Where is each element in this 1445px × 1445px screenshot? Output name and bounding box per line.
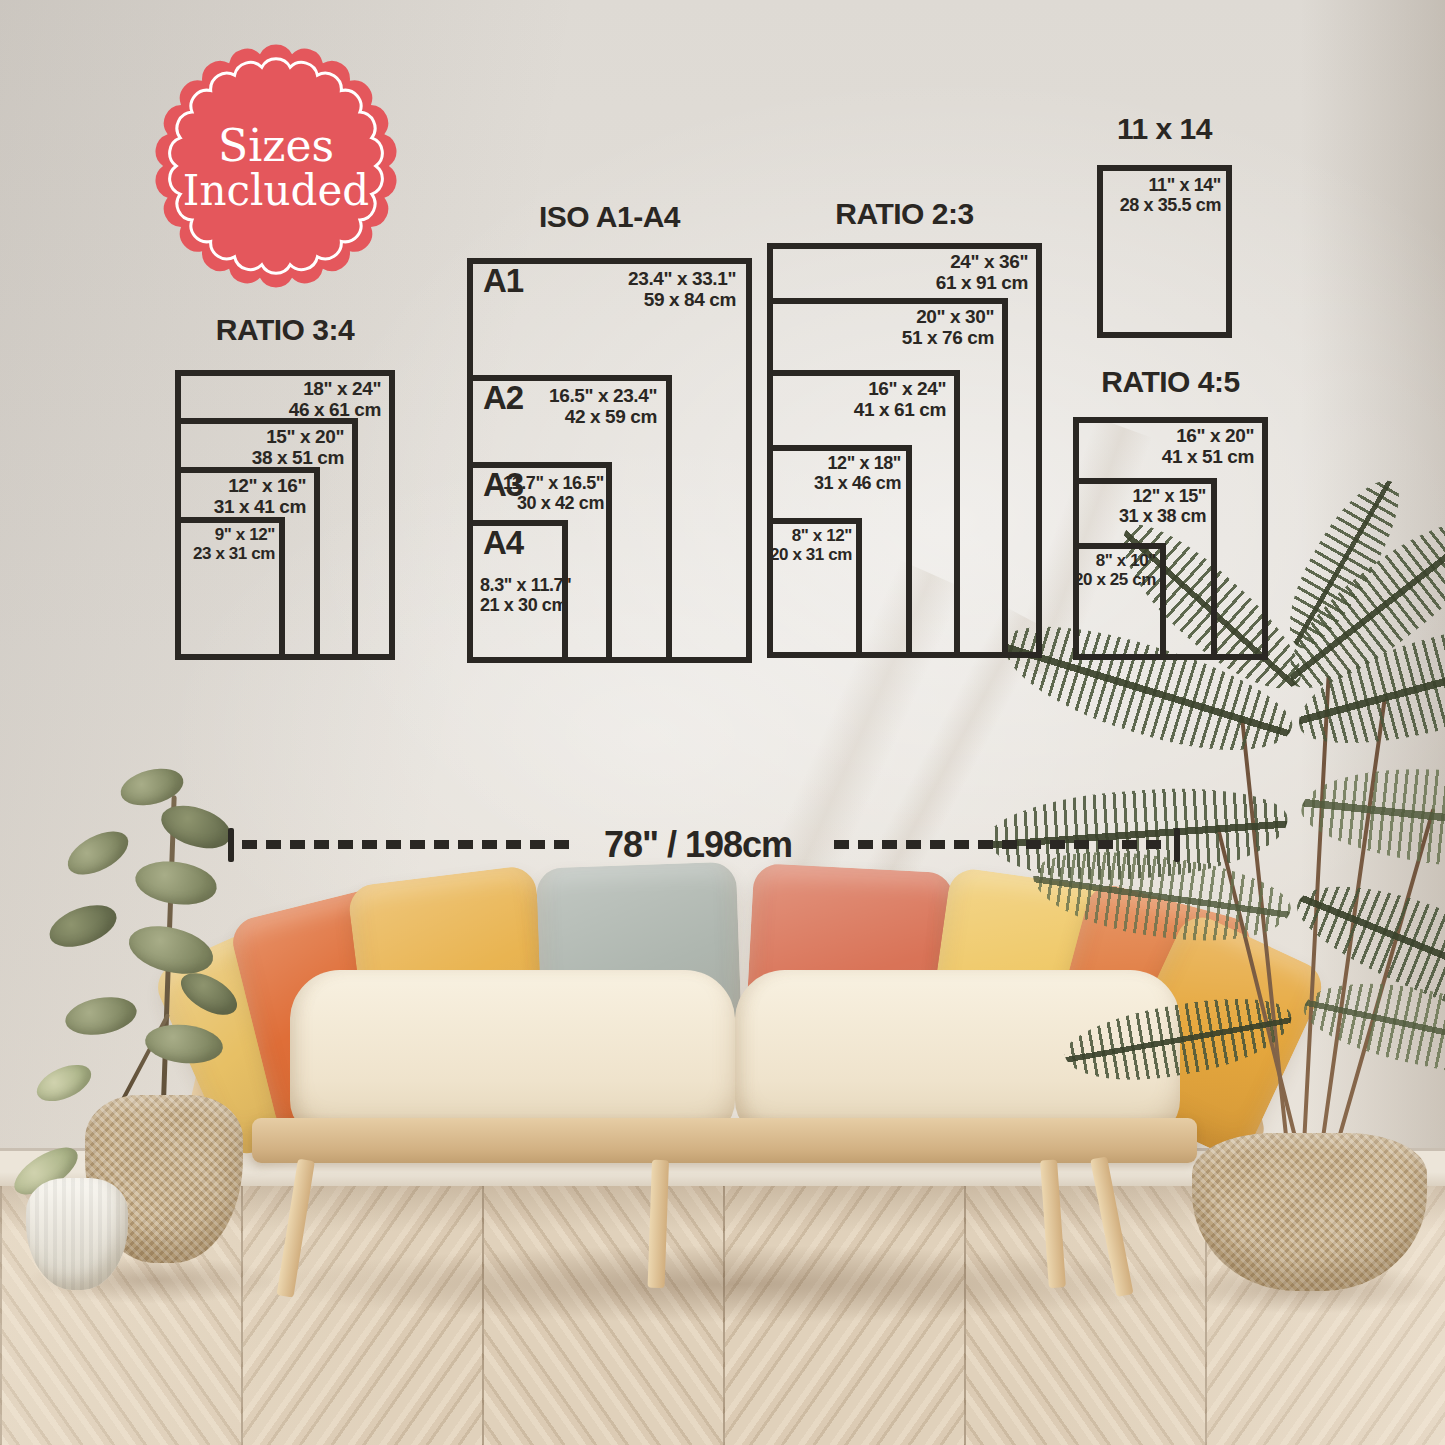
palm-frond: [1059, 986, 1298, 1095]
leaf: [132, 856, 219, 909]
seat-cushion-left: [290, 970, 735, 1140]
mockup-scene: Sizes Included RATIO 3:4 18" x 24"46 x 6…: [0, 0, 1445, 1445]
white-pot: [26, 1178, 128, 1290]
leaf: [62, 992, 139, 1040]
leaf: [143, 1021, 225, 1067]
woven-basket-right: [1192, 1133, 1427, 1291]
potted-plant-left: [10, 770, 270, 1295]
leaf: [124, 918, 218, 981]
leaf: [61, 822, 135, 883]
palm-plant-right: [1040, 555, 1445, 1290]
leaf: [44, 897, 122, 955]
leaf: [117, 763, 187, 811]
leaf: [31, 1058, 96, 1109]
leaf: [156, 798, 236, 856]
